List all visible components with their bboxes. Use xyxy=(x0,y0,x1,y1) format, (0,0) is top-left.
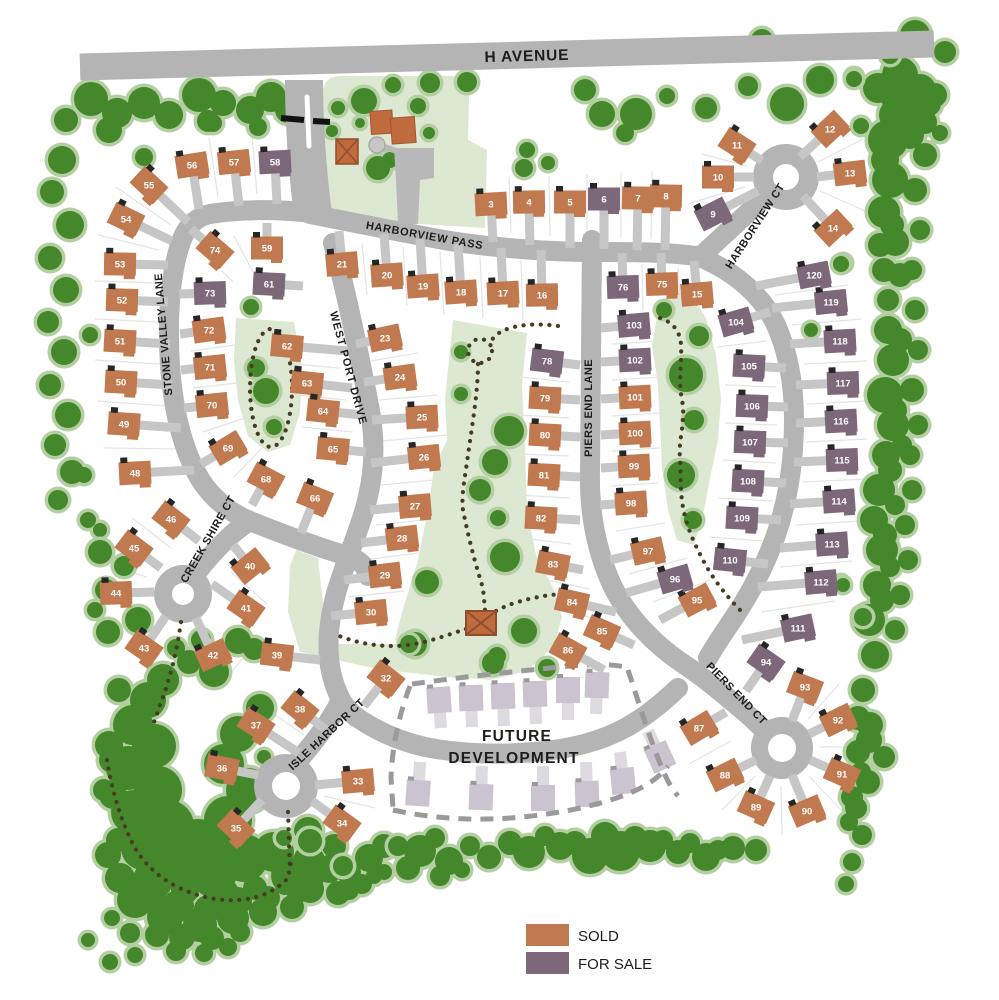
svg-text:120: 120 xyxy=(806,271,822,282)
svg-text:108: 108 xyxy=(740,477,756,488)
svg-text:28: 28 xyxy=(397,534,408,545)
svg-text:91: 91 xyxy=(837,770,848,781)
svg-text:SOLD: SOLD xyxy=(578,928,619,945)
svg-text:64: 64 xyxy=(318,407,329,418)
svg-text:13: 13 xyxy=(845,169,856,180)
svg-text:H AVENUE: H AVENUE xyxy=(484,47,569,66)
svg-text:71: 71 xyxy=(205,363,216,374)
svg-text:33: 33 xyxy=(353,777,364,788)
svg-text:3: 3 xyxy=(488,200,493,211)
svg-text:51: 51 xyxy=(115,337,126,348)
svg-text:DEVELOPMENT: DEVELOPMENT xyxy=(448,750,579,767)
svg-text:84: 84 xyxy=(567,598,578,609)
svg-text:34: 34 xyxy=(337,819,348,830)
svg-text:38: 38 xyxy=(295,705,306,716)
svg-text:92: 92 xyxy=(833,716,844,727)
svg-text:65: 65 xyxy=(328,445,339,456)
svg-text:37: 37 xyxy=(251,721,262,732)
svg-text:114: 114 xyxy=(831,497,847,508)
svg-text:118: 118 xyxy=(832,337,847,348)
svg-text:85: 85 xyxy=(597,627,608,638)
svg-text:54: 54 xyxy=(121,215,132,226)
svg-text:109: 109 xyxy=(734,514,750,525)
svg-text:39: 39 xyxy=(272,651,283,662)
svg-text:29: 29 xyxy=(380,571,391,582)
svg-text:41: 41 xyxy=(241,604,252,615)
svg-text:56: 56 xyxy=(187,161,198,172)
svg-text:95: 95 xyxy=(692,596,703,607)
svg-text:88: 88 xyxy=(720,771,731,782)
svg-text:69: 69 xyxy=(223,444,234,455)
svg-text:96: 96 xyxy=(670,575,681,586)
svg-text:107: 107 xyxy=(742,438,758,449)
svg-text:44: 44 xyxy=(111,589,122,600)
svg-text:83: 83 xyxy=(548,560,559,571)
svg-text:119: 119 xyxy=(823,298,838,309)
svg-text:49: 49 xyxy=(119,420,130,431)
svg-text:6: 6 xyxy=(601,195,606,206)
svg-text:14: 14 xyxy=(828,224,839,235)
svg-text:70: 70 xyxy=(207,401,218,412)
svg-text:66: 66 xyxy=(310,494,321,505)
svg-text:103: 103 xyxy=(626,321,642,332)
svg-text:53: 53 xyxy=(115,260,126,271)
svg-text:48: 48 xyxy=(130,469,141,480)
svg-text:106: 106 xyxy=(744,402,760,413)
svg-text:75: 75 xyxy=(657,280,668,291)
svg-text:9: 9 xyxy=(710,210,715,221)
svg-text:58: 58 xyxy=(270,158,281,169)
svg-text:111: 111 xyxy=(791,624,807,635)
svg-text:97: 97 xyxy=(643,547,654,558)
svg-text:99: 99 xyxy=(629,462,640,473)
svg-text:104: 104 xyxy=(728,318,745,329)
svg-text:112: 112 xyxy=(813,578,828,589)
svg-text:63: 63 xyxy=(302,379,313,390)
svg-text:FOR SALE: FOR SALE xyxy=(578,956,652,973)
svg-text:50: 50 xyxy=(116,378,127,389)
svg-text:42: 42 xyxy=(208,651,219,662)
svg-text:26: 26 xyxy=(419,453,430,464)
svg-text:93: 93 xyxy=(800,683,811,694)
svg-text:74: 74 xyxy=(210,246,221,257)
svg-text:20: 20 xyxy=(382,271,393,282)
svg-text:24: 24 xyxy=(395,373,406,384)
svg-text:11: 11 xyxy=(732,141,743,152)
svg-text:59: 59 xyxy=(262,244,273,255)
svg-text:76: 76 xyxy=(618,283,629,294)
svg-text:45: 45 xyxy=(129,544,140,555)
svg-text:117: 117 xyxy=(835,379,850,390)
svg-text:68: 68 xyxy=(261,475,272,486)
svg-text:30: 30 xyxy=(366,608,377,619)
svg-text:86: 86 xyxy=(563,646,574,657)
svg-text:35: 35 xyxy=(231,824,242,835)
svg-text:43: 43 xyxy=(139,644,150,655)
svg-text:36: 36 xyxy=(217,764,228,775)
svg-text:46: 46 xyxy=(166,515,177,526)
svg-text:25: 25 xyxy=(417,413,428,424)
svg-text:18: 18 xyxy=(456,288,467,299)
svg-text:32: 32 xyxy=(381,674,392,685)
svg-text:102: 102 xyxy=(627,356,643,367)
svg-text:81: 81 xyxy=(539,471,550,482)
svg-text:72: 72 xyxy=(204,326,215,337)
svg-text:7: 7 xyxy=(635,194,640,205)
svg-text:110: 110 xyxy=(722,556,737,567)
svg-text:16: 16 xyxy=(537,291,548,302)
svg-text:89: 89 xyxy=(751,803,762,814)
svg-text:40: 40 xyxy=(245,562,256,573)
svg-text:4: 4 xyxy=(526,198,532,209)
svg-text:FUTURE: FUTURE xyxy=(482,728,552,745)
svg-text:79: 79 xyxy=(540,394,551,405)
svg-text:80: 80 xyxy=(540,431,551,442)
svg-text:78: 78 xyxy=(542,357,553,368)
svg-text:98: 98 xyxy=(626,499,637,510)
svg-text:73: 73 xyxy=(205,289,216,300)
svg-text:94: 94 xyxy=(761,658,772,669)
svg-text:61: 61 xyxy=(264,280,275,291)
svg-text:113: 113 xyxy=(824,540,839,551)
svg-text:82: 82 xyxy=(536,514,547,525)
svg-text:PIERS END LANE: PIERS END LANE xyxy=(583,359,595,457)
svg-text:55: 55 xyxy=(144,181,155,192)
svg-text:19: 19 xyxy=(418,282,429,293)
svg-text:12: 12 xyxy=(825,125,836,136)
svg-text:100: 100 xyxy=(627,429,643,440)
svg-text:23: 23 xyxy=(380,334,391,345)
svg-text:10: 10 xyxy=(713,173,724,184)
svg-text:62: 62 xyxy=(282,342,293,353)
svg-text:115: 115 xyxy=(834,456,850,467)
svg-text:5: 5 xyxy=(567,198,573,209)
svg-text:52: 52 xyxy=(117,296,128,307)
svg-text:101: 101 xyxy=(627,393,644,404)
svg-text:15: 15 xyxy=(692,290,703,301)
svg-text:17: 17 xyxy=(498,289,509,300)
svg-text:116: 116 xyxy=(833,417,848,428)
svg-text:90: 90 xyxy=(802,807,813,818)
svg-text:57: 57 xyxy=(229,158,240,169)
svg-text:21: 21 xyxy=(337,260,348,271)
svg-text:87: 87 xyxy=(694,724,705,735)
svg-text:27: 27 xyxy=(410,502,421,513)
svg-text:8: 8 xyxy=(663,192,668,203)
svg-text:105: 105 xyxy=(741,362,758,373)
